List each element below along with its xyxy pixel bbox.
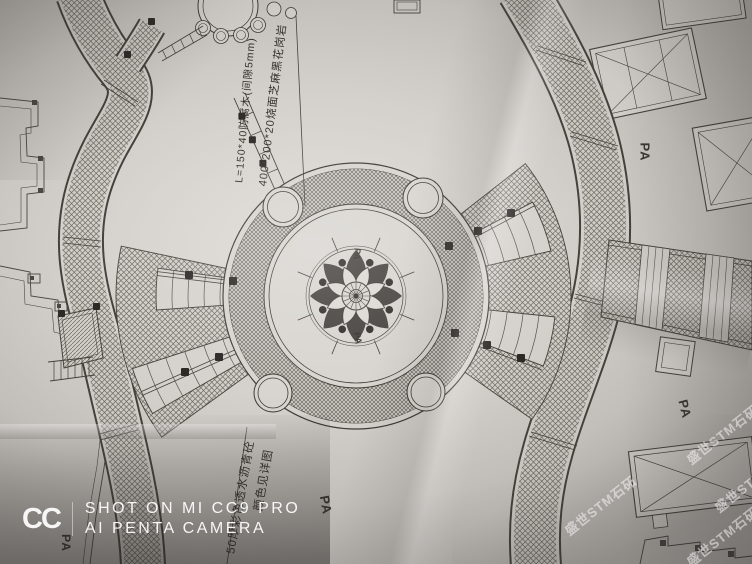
planting-area-label-south-center: PA xyxy=(317,494,335,515)
camera-watermark-line1: SHOT ON MI CC9 PRO xyxy=(85,500,300,518)
planter-square xyxy=(656,337,696,377)
watermark-divider xyxy=(72,502,73,536)
blueprint-photo: L=150*40防腐木(间隙5mm) 400*200*20烧面芝麻黑花岗岩 50… xyxy=(0,0,752,564)
east-connector-band xyxy=(601,240,752,350)
top-ladder-steps xyxy=(158,26,207,61)
planting-area-label-east-upper: PA xyxy=(638,142,653,161)
camera-watermark-line2: AI PENTA CAMERA xyxy=(85,520,300,538)
camera-watermark: CC SHOT ON MI CC9 PRO AI PENTA CAMERA xyxy=(22,500,300,539)
planting-area-label-plaza-top: PA xyxy=(351,248,362,261)
mi-cc-logo: CC xyxy=(22,505,60,534)
west-timber-deck xyxy=(58,308,103,368)
site-plan-drawing xyxy=(0,0,752,564)
planting-area-label-plaza-bottom: PA xyxy=(352,332,363,345)
